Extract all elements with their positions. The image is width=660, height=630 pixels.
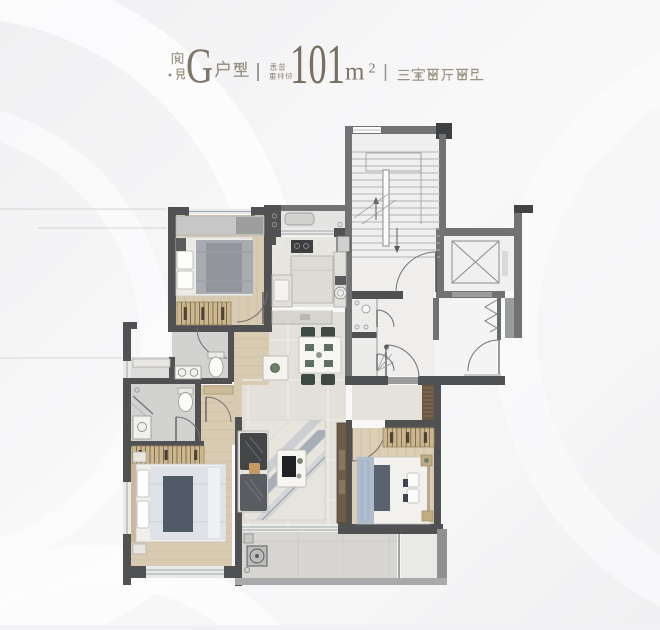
- svg-text:101: 101: [290, 34, 345, 96]
- svg-text:2: 2: [369, 62, 376, 77]
- svg-text:m: m: [345, 59, 365, 86]
- svg-text:G: G: [186, 37, 213, 93]
